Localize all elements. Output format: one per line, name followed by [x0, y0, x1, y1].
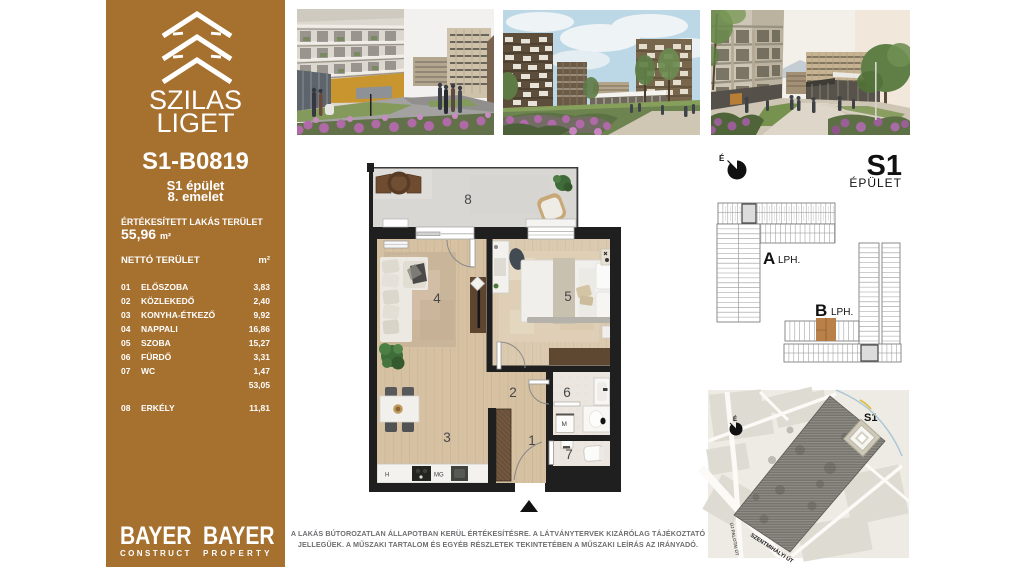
svg-text:A: A — [763, 249, 775, 268]
svg-text:4: 4 — [433, 291, 441, 306]
svg-text:H: H — [385, 473, 389, 479]
svg-text:2: 2 — [509, 385, 517, 400]
svg-text:8: 8 — [464, 192, 472, 207]
svg-text:5: 5 — [564, 289, 572, 304]
svg-text:M: M — [562, 421, 567, 428]
svg-text:LPH.: LPH. — [831, 307, 853, 318]
svg-text:S1: S1 — [864, 412, 877, 424]
svg-text:MG: MG — [434, 473, 444, 479]
svg-text:3: 3 — [443, 430, 451, 445]
svg-text:ÉPÜLET: ÉPÜLET — [849, 175, 902, 190]
svg-text:LPH.: LPH. — [778, 255, 800, 266]
svg-text:É: É — [719, 154, 725, 163]
svg-text:B: B — [815, 301, 827, 320]
svg-text:7: 7 — [565, 447, 573, 462]
svg-text:6: 6 — [563, 385, 571, 400]
